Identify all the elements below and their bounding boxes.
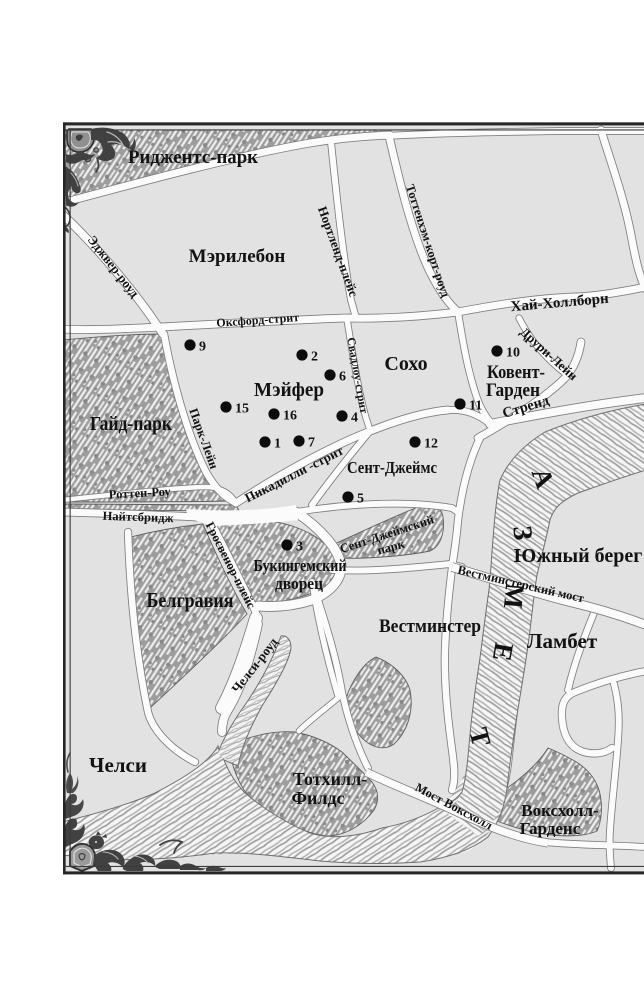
svg-text:3: 3 [296,540,303,555]
svg-text:Букингемский: Букингемский [254,556,347,575]
svg-text:Челси: Челси [89,753,147,777]
svg-text:М: М [498,582,530,610]
svg-text:Филдс: Филдс [291,788,344,808]
svg-text:Найтсбридж: Найтсбридж [102,509,174,526]
svg-text:7: 7 [308,436,315,451]
svg-text:1: 1 [274,437,281,452]
svg-text:4: 4 [351,411,358,426]
svg-text:11: 11 [469,399,482,414]
svg-text:дворец: дворец [275,574,323,593]
svg-text:Вестминстер: Вестминстер [379,616,481,637]
svg-text:9: 9 [199,340,206,355]
svg-text:12: 12 [424,437,438,452]
svg-text:Тотхилл-: Тотхилл- [293,769,367,789]
svg-text:Сохо: Сохо [384,353,427,375]
svg-text:Южный берег: Южный берег [514,545,643,567]
svg-text:Мэйфер: Мэйфер [254,379,324,401]
svg-text:2: 2 [311,350,318,365]
svg-text:Белгравия: Белгравия [147,588,234,612]
svg-text:15: 15 [235,402,249,417]
svg-text:З: З [507,525,538,542]
svg-text:Ламбет: Ламбет [527,629,598,653]
svg-text:Риджентс-парк: Риджентс-парк [128,147,258,168]
svg-text:6: 6 [339,370,346,385]
svg-text:Гарденс: Гарденс [520,819,581,838]
svg-text:Сент-Джеймс: Сент-Джеймс [347,458,437,477]
svg-text:Воксхолл-: Воксхолл- [521,801,599,820]
svg-text:5: 5 [357,492,364,507]
svg-text:Мэрилебон: Мэрилебон [189,246,286,267]
svg-text:10: 10 [506,346,520,361]
svg-text:Гайд-парк: Гайд-парк [90,413,172,435]
svg-text:16: 16 [283,409,297,424]
